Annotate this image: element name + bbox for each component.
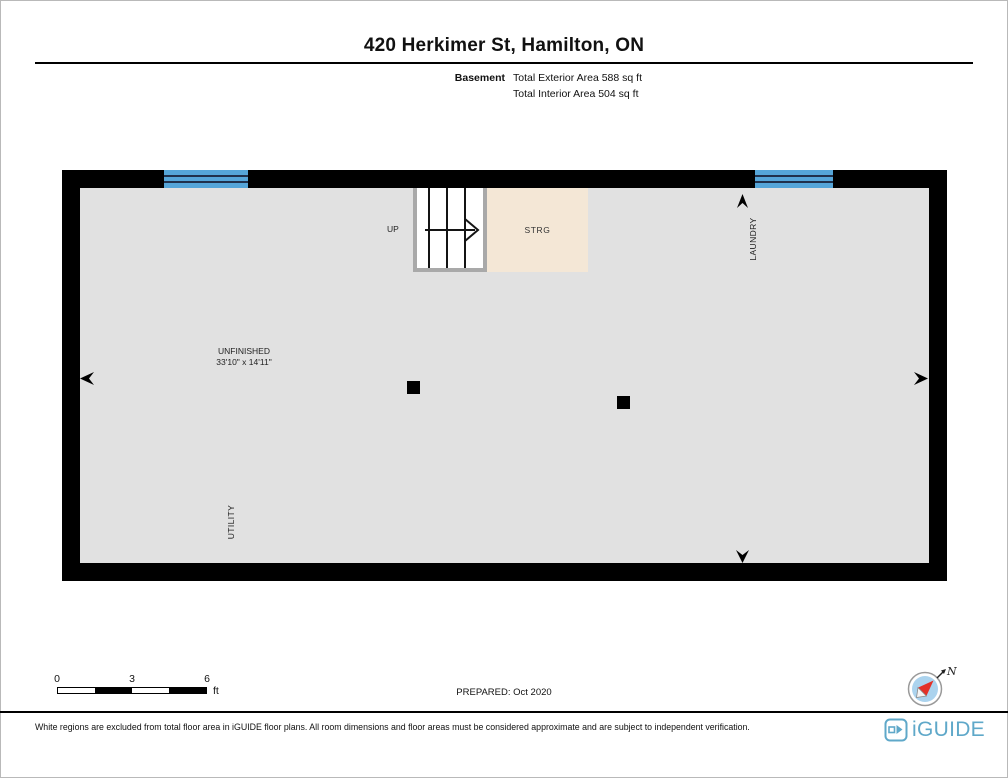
window-pane-line	[164, 181, 248, 183]
exterior-area-text: Total Exterior Area 588 sq ft	[513, 70, 642, 86]
scale-tick-3: 3	[124, 673, 140, 685]
laundry-arrow-up-icon	[736, 194, 749, 209]
compass-north-label: N	[946, 665, 957, 678]
up-label: UP	[387, 224, 399, 234]
storage-label: STRG	[524, 225, 550, 235]
interior-area-text: Total Interior Area 504 sq ft	[513, 86, 642, 102]
iguide-logo: iGUIDE	[884, 718, 985, 742]
window-left	[164, 170, 248, 188]
window-right	[755, 170, 833, 188]
opening-marker-left-icon	[79, 371, 95, 386]
support-post	[617, 396, 630, 409]
header-divider	[35, 62, 973, 64]
window-pane-line	[164, 175, 248, 177]
iguide-logo-text: iGUIDE	[912, 718, 985, 742]
iguide-logo-icon	[884, 718, 908, 742]
floor-name-label: Basement	[0, 70, 505, 86]
page-title: 420 Herkimer St, Hamilton, ON	[0, 35, 1008, 57]
compass-icon: N	[903, 660, 961, 714]
floorplan-page: 420 Herkimer St, Hamilton, ON Basement T…	[0, 0, 1008, 778]
opening-marker-bottom-icon	[735, 549, 750, 564]
footer-divider	[0, 711, 1008, 713]
storage-room: STRG	[487, 188, 588, 272]
stair-direction-arrow	[417, 188, 483, 268]
scale-tick-0: 0	[49, 673, 65, 685]
room-dimensions: 33'10" x 14'11"	[184, 357, 304, 368]
utility-label: UTILITY	[226, 492, 236, 552]
scale-tick-6: 6	[199, 673, 215, 685]
area-summary: Total Exterior Area 588 sq ft Total Inte…	[513, 70, 642, 102]
staircase	[413, 188, 487, 272]
opening-marker-right-icon	[913, 371, 929, 386]
prepared-date: PREPARED: Oct 2020	[0, 687, 1008, 698]
unfinished-room-label: UNFINISHED 33'10" x 14'11"	[184, 346, 304, 367]
laundry-label: LAUNDRY	[748, 209, 758, 269]
footer-disclaimer: White regions are excluded from total fl…	[35, 722, 750, 732]
window-pane-line	[755, 181, 833, 183]
support-post	[407, 381, 420, 394]
room-name: UNFINISHED	[184, 346, 304, 357]
window-pane-line	[755, 175, 833, 177]
